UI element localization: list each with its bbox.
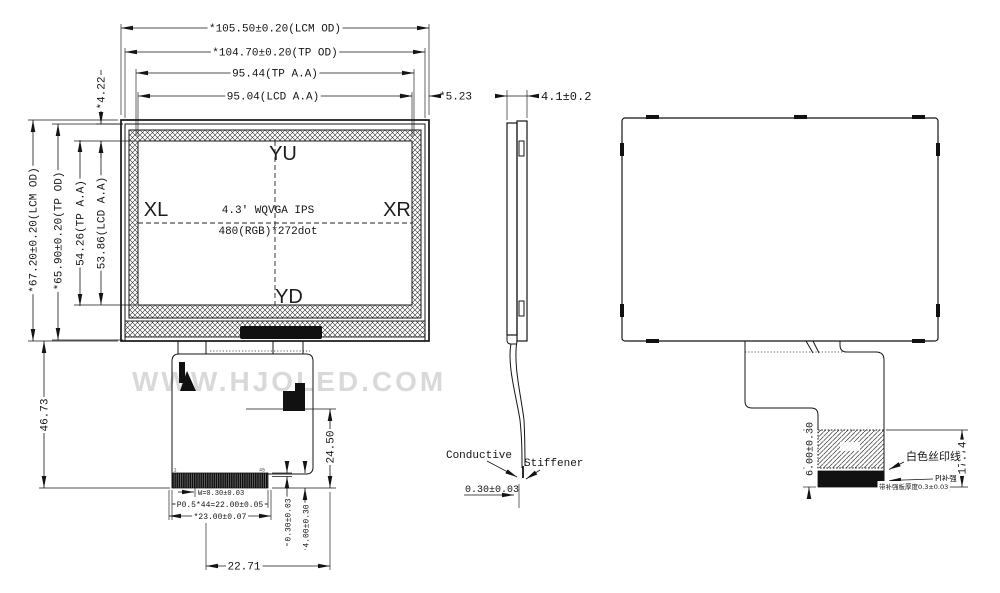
stiffener-thickness-note-label: 带补强板厚度0.3±0.03 — [879, 482, 948, 491]
dim-fpc-length-label: 24.50 — [326, 430, 338, 463]
stiffener-mark — [840, 442, 860, 451]
dim-fpc-thickness-label: 0.30±0.03 — [465, 485, 519, 496]
dim-connector-offset-label: 22.71 — [227, 562, 260, 574]
side-view: 4.1±0.2 Conductive Stiffener 0.30±0.03 — [446, 90, 591, 508]
dim-tp-aa-height-label: 54.26(TP A.A) — [76, 180, 88, 266]
panel-spec-line2: 480(RGB)*272dot — [218, 226, 317, 238]
drawing-canvas: WWW.HJOLED.COM — [0, 0, 1000, 593]
dim-connector-width-label: *23.00±0.07 — [194, 513, 247, 522]
dim-connector-height-label: 4.00±0.30 — [303, 504, 312, 547]
fpc-connector — [172, 473, 268, 488]
dim-lcd-aa-width-label: 95.04(LCD A.A) — [227, 92, 319, 104]
marker-xl-label: XL — [144, 199, 168, 221]
back-cover-outline — [622, 118, 938, 341]
dim-pin-pitch-label: P0.5*44=22.00±0.05 — [177, 501, 264, 510]
dim-connector-thickness-label: 0.30±0.03 — [285, 498, 294, 541]
dim-tp-aa-width-label: 95.44(TP A.A) — [232, 69, 318, 81]
dim-right-gap-label: *5.23 — [439, 92, 472, 104]
dim-module-thickness-label: 4.1±0.2 — [541, 90, 591, 104]
marker-yd-label: YD — [275, 286, 303, 308]
dim-lcm-width-label: *105.50±0.20(LCM OD) — [209, 24, 341, 36]
conductive-label: Conductive — [446, 450, 512, 462]
mounting-tabs — [620, 115, 940, 343]
mounting-clip-top — [519, 141, 524, 156]
back-view: 6.00±0.30 17.74 白色丝印线 PI补强 带补强板厚度0.3±0.0… — [620, 115, 971, 499]
fpc-tail — [510, 341, 525, 478]
dim-pin-width-label: W=0.30±0.03 — [198, 490, 244, 498]
mounting-clip-bottom — [519, 301, 524, 316]
dim-fpc-drop-label: 46.73 — [40, 398, 52, 431]
panel-spec-line1: 4.3' WQVGA IPS — [222, 205, 315, 217]
side-bottom-hook — [507, 335, 517, 344]
fpc-pi-bar — [818, 471, 884, 487]
dim-top-gap-label: *4.22 — [97, 76, 109, 109]
pin-1-label: 1 — [173, 468, 176, 474]
dim-lcd-aa-height-label: 53.86(LCD A.A) — [97, 177, 109, 269]
side-panel-profile — [507, 123, 517, 335]
pin-45-label: 45 — [259, 468, 265, 474]
front-fpc — [172, 341, 313, 488]
dim-stiffener-height-label: 6.00±0.30 — [806, 422, 817, 476]
dim-lcm-height-label: *67.20±0.20(LCM OD) — [29, 167, 41, 292]
marker-yu-label: YU — [269, 143, 297, 165]
silkscreen-label: 白色丝印线 — [906, 449, 961, 463]
front-view: *105.50±0.20(LCM OD) *104.70±0.20(TP OD)… — [28, 23, 473, 575]
fpc-bond-area — [240, 326, 322, 339]
side-extension-lines — [507, 90, 527, 120]
crosshair — [138, 141, 412, 305]
stiffener-label: Stiffener — [524, 458, 583, 470]
dim-tp-height-label: *65.90±0.20(TP OD) — [54, 172, 66, 291]
marker-xr-label: XR — [383, 199, 411, 221]
dim-tp-width-label: *104.70±0.20(TP OD) — [212, 48, 337, 60]
